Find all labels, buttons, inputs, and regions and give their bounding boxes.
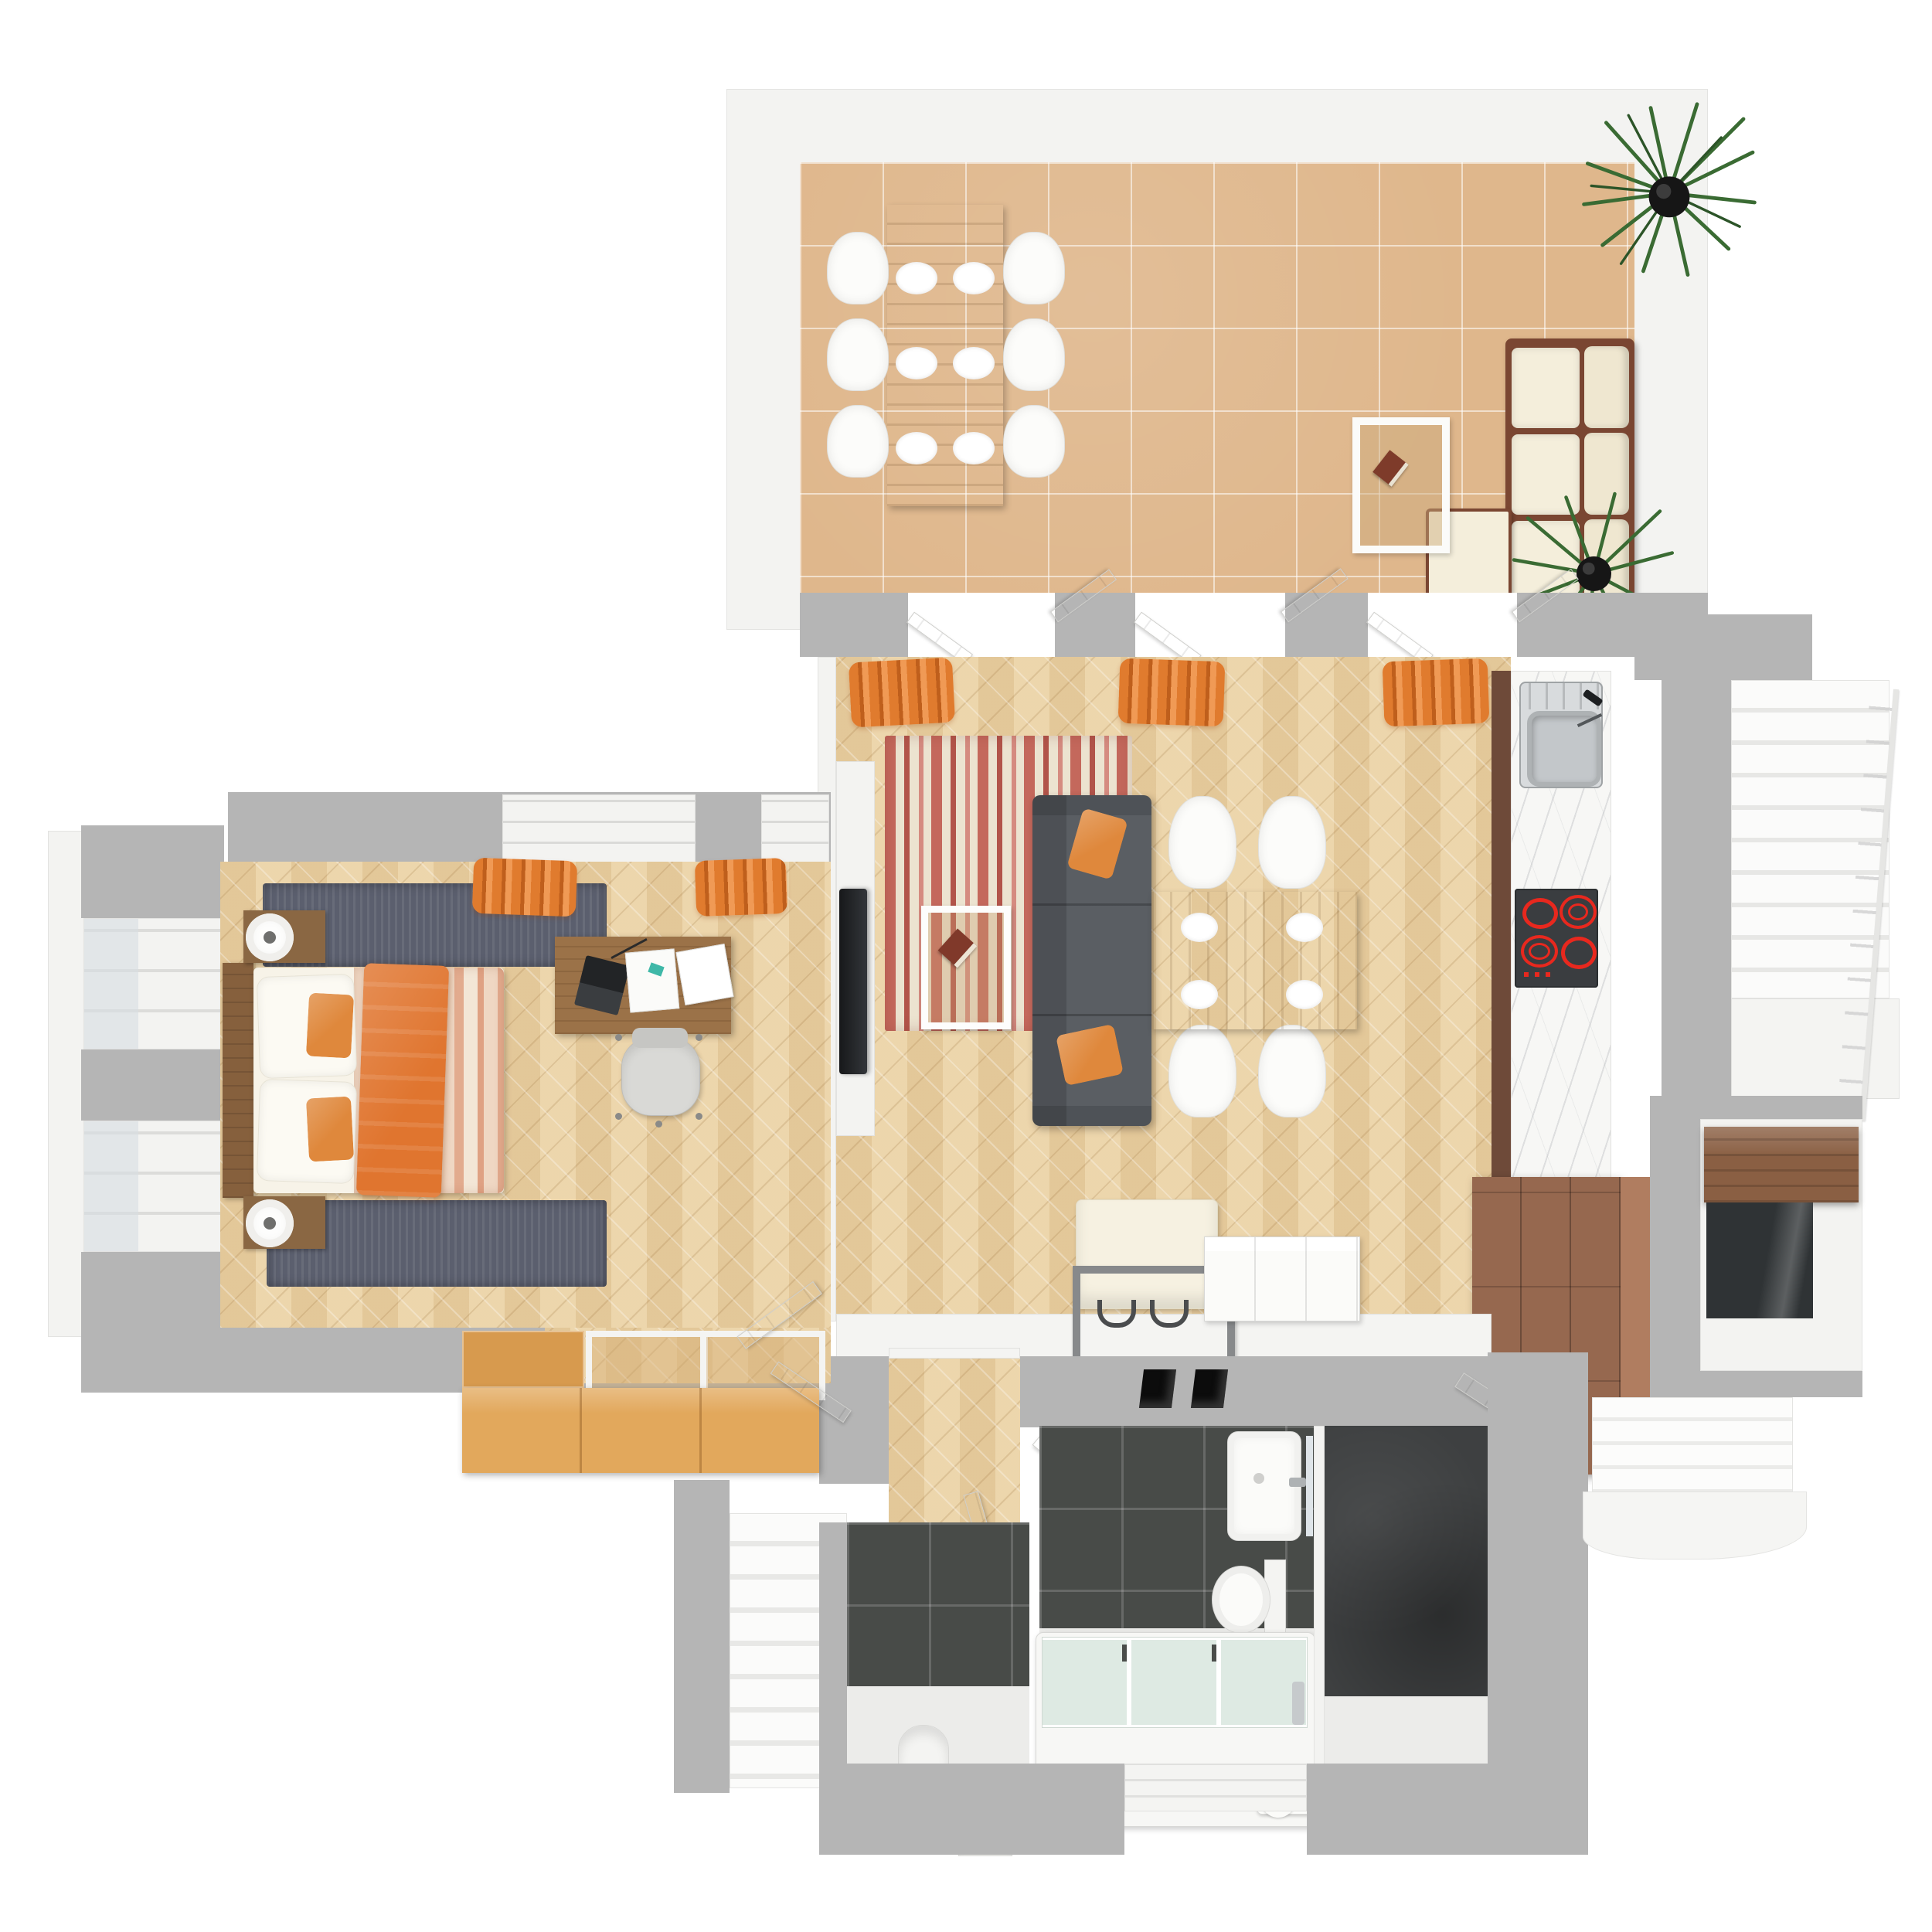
bedroom-top-window-bay — [502, 794, 696, 862]
niche-dark-opening — [1706, 1202, 1813, 1318]
bedroom-bay-window — [83, 918, 221, 1049]
terrace-chair — [1003, 232, 1065, 304]
orange-curtain — [849, 658, 955, 728]
living-bottom-wall — [1020, 1356, 1492, 1427]
living-sofa-backrest — [1032, 795, 1066, 1126]
shower-fixture-icon — [1292, 1682, 1304, 1725]
hob-burner — [1521, 935, 1558, 968]
bedroom-bay-window — [83, 1121, 221, 1252]
niche-wood-shelf — [1704, 1127, 1859, 1202]
bathroom-mirror — [1306, 1436, 1313, 1536]
plate — [1181, 913, 1218, 942]
terrace-chair — [827, 232, 889, 304]
glass-hinge-icon — [1212, 1645, 1216, 1662]
terrace-chair — [827, 318, 889, 391]
entry-stairs-left-wall — [674, 1480, 730, 1793]
bedroom-left-outer-wall — [48, 831, 85, 1337]
white-sideboard — [1204, 1236, 1360, 1321]
bedside-lamp-icon — [246, 1199, 294, 1247]
bedroom-top-window-bay — [761, 794, 829, 862]
dining-chair — [1168, 796, 1236, 889]
notebook — [675, 944, 733, 1005]
bottom-outer-wall — [819, 1764, 1124, 1855]
paper-sheet — [625, 948, 680, 1012]
stair-landing — [1731, 998, 1900, 1099]
terrace-sofa-seat-cushion — [1512, 348, 1580, 428]
hall-threshold — [889, 1348, 1020, 1359]
plate — [953, 432, 995, 464]
plate — [953, 262, 995, 294]
plate — [1181, 980, 1218, 1009]
terrace-side-table — [1352, 417, 1450, 553]
orange-curtain — [695, 858, 787, 917]
terrace-sofa-back-cushion — [1584, 346, 1629, 428]
orange-pillow — [306, 1097, 354, 1162]
plate — [896, 432, 937, 464]
kitchen-sink-bowl — [1527, 711, 1601, 787]
bottom-outer-wall — [1307, 1764, 1588, 1855]
chair-wheel-icon — [615, 1034, 622, 1041]
bedside-lamp-icon — [246, 913, 294, 961]
oak-chest-wood-top — [462, 1331, 584, 1388]
storage-room-floor — [1325, 1426, 1488, 1696]
orange-curtain — [472, 858, 577, 917]
glass-hinge-icon — [1122, 1645, 1127, 1662]
wall-vent — [1191, 1369, 1228, 1408]
staircase-down-landing — [1583, 1492, 1807, 1560]
plate — [1286, 913, 1323, 942]
orange-curtain — [1118, 658, 1226, 727]
wc-wall-tiles — [847, 1522, 1029, 1686]
bedroom-left-wall-mid — [81, 1049, 224, 1121]
dining-table — [1151, 892, 1357, 1029]
bed-headboard — [223, 963, 253, 1198]
hob-controls — [1524, 972, 1550, 977]
dining-chair — [1168, 1025, 1236, 1117]
hob-burner — [1522, 898, 1558, 929]
tv-icon — [839, 889, 867, 1074]
dining-chair — [1258, 1025, 1326, 1117]
orange-pillow — [306, 993, 354, 1059]
plate — [953, 347, 995, 379]
hob-burner — [1560, 895, 1597, 929]
hob-burner — [1561, 937, 1597, 969]
dining-chair — [1258, 796, 1326, 889]
floor-plan-canvas — [0, 0, 1932, 1932]
coffee-table — [921, 906, 1011, 1029]
bathtub-glass-screen — [1042, 1637, 1308, 1728]
bedroom-left-wall-top — [81, 825, 224, 918]
orange-blanket — [356, 963, 449, 1198]
washbasin-drain-icon — [1253, 1473, 1264, 1484]
plate — [896, 347, 937, 379]
wall-vent — [1139, 1369, 1176, 1408]
potted-palm-plant-icon — [1577, 100, 1762, 286]
bathroom-toilet-bowl — [1212, 1566, 1270, 1634]
terrace-chair — [1003, 318, 1065, 391]
office-chair-back — [632, 1028, 688, 1048]
storage-right-wall — [1488, 1352, 1588, 1785]
bottom-threshold — [1124, 1764, 1307, 1811]
oak-chest-front — [462, 1388, 819, 1473]
plate — [1286, 980, 1323, 1009]
staircase-down — [1592, 1397, 1793, 1498]
terrace-chair — [1003, 405, 1065, 478]
washbasin-faucet-icon — [1289, 1478, 1306, 1487]
kitchen-cabinet-back-strip — [1492, 671, 1511, 1181]
bedroom-left-wall-bottom — [81, 1252, 224, 1337]
plate — [896, 262, 937, 294]
office-chair — [621, 1037, 700, 1116]
bath-storage-wall — [1314, 1426, 1325, 1785]
hallway-floor — [889, 1359, 1020, 1527]
terrace-chair — [827, 405, 889, 478]
orange-curtain — [1383, 658, 1490, 727]
